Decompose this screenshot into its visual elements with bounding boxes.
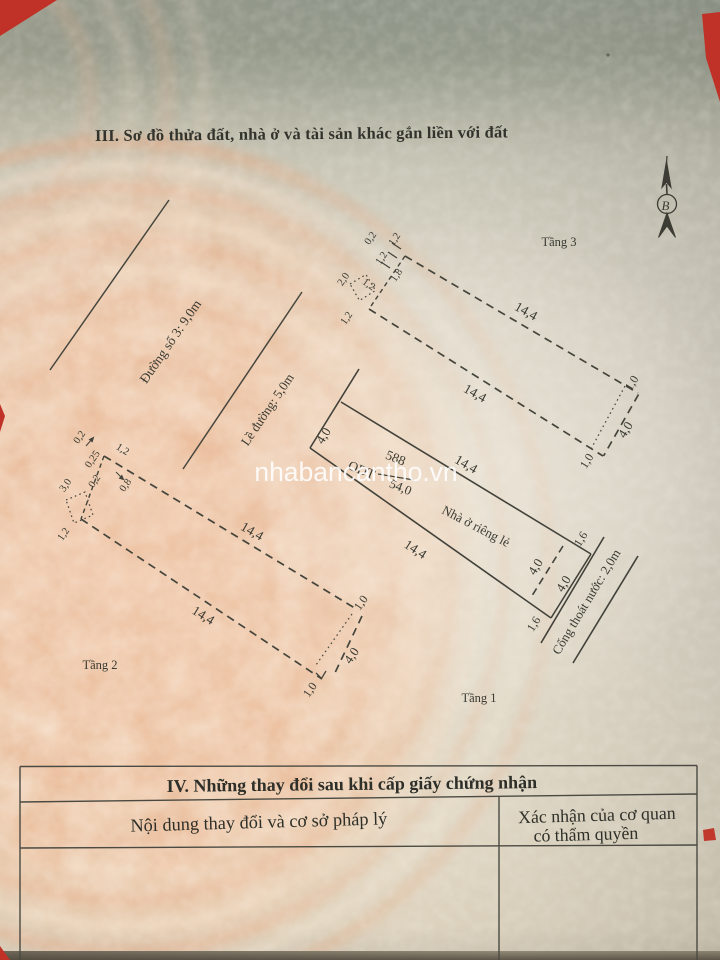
- svg-text:Tầng 2: Tầng 2: [82, 658, 117, 672]
- svg-text:IV. Những thay đổi sau khi cấp: IV. Những thay đổi sau khi cấp giấy chứn…: [167, 772, 538, 796]
- svg-text:Tầng 3: Tầng 3: [541, 235, 576, 249]
- svg-text:III. Sơ đồ thửa đất, nhà ở và: III. Sơ đồ thửa đất, nhà ở và tài sản kh…: [95, 122, 509, 145]
- svg-text:Tầng 1: Tầng 1: [461, 691, 496, 705]
- svg-text:có thẩm quyền: có thẩm quyền: [533, 823, 638, 846]
- svg-text:B: B: [662, 198, 670, 213]
- svg-text:nhabancantho.vn: nhabancantho.vn: [254, 457, 457, 487]
